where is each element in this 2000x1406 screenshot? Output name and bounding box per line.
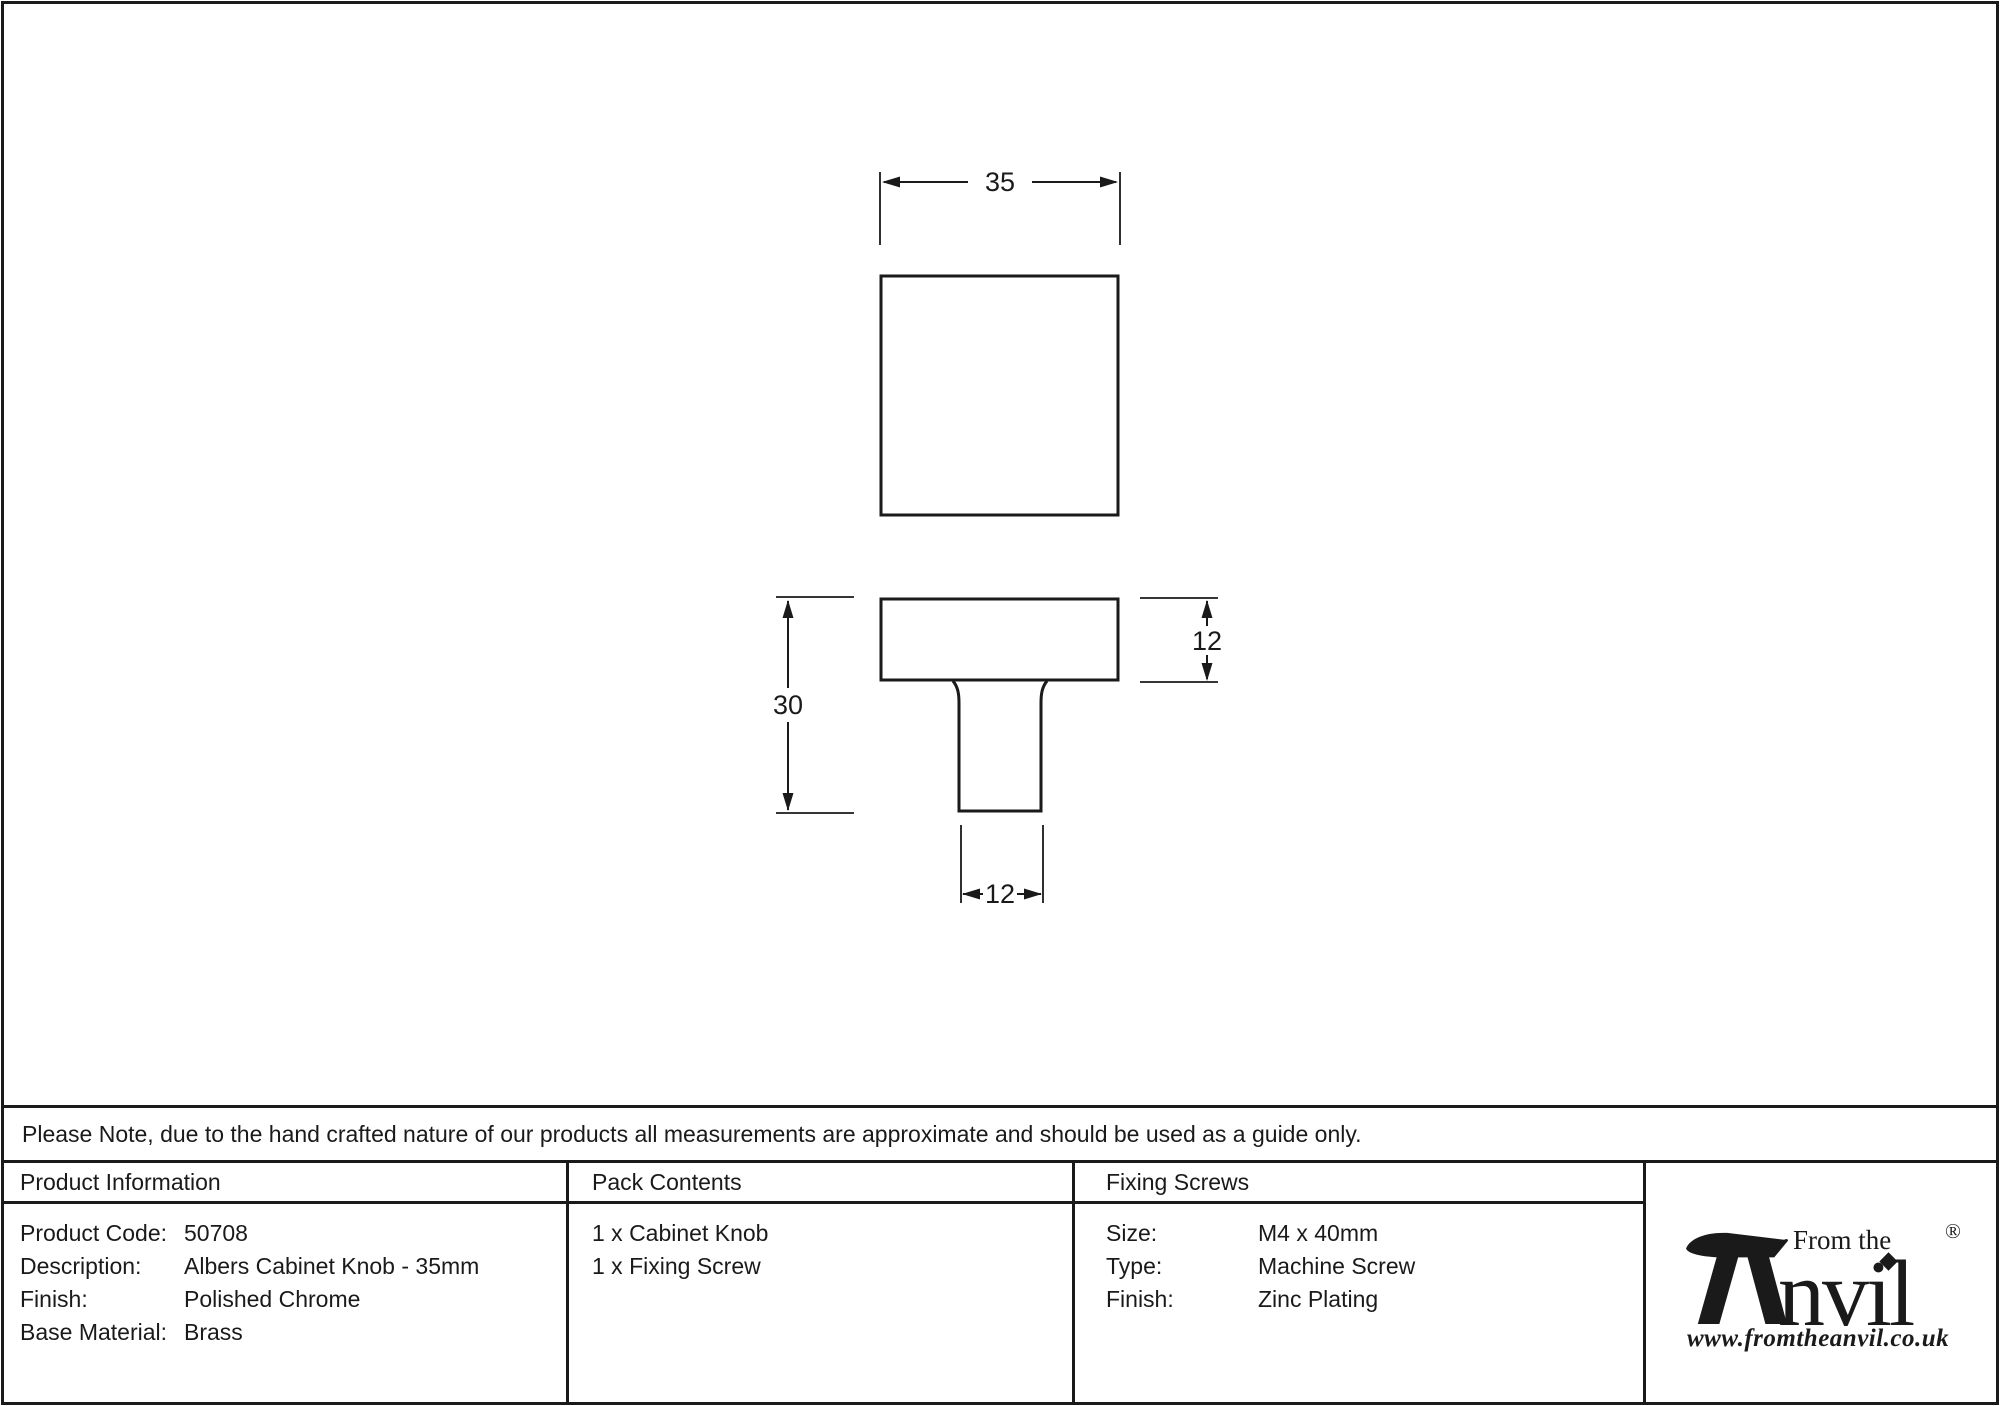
measurement-note-bar: Please Note, due to the hand crafted nat… bbox=[4, 1105, 1996, 1163]
table-row: Type: Machine Screw bbox=[1106, 1250, 1643, 1283]
pack-contents-header: Pack Contents bbox=[569, 1163, 1072, 1204]
dim-label-stem-width: 12 bbox=[985, 879, 1015, 909]
dimension-total-height-30: 30 bbox=[773, 597, 854, 813]
screw-finish-label: Finish: bbox=[1106, 1283, 1258, 1316]
table-row: Finish: Zinc Plating bbox=[1106, 1283, 1643, 1316]
screw-finish-value: Zinc Plating bbox=[1258, 1283, 1643, 1316]
side-view bbox=[881, 599, 1118, 811]
arrow-down-icon bbox=[1202, 663, 1213, 681]
table-row: Base Material: Brass bbox=[20, 1316, 566, 1349]
arrow-right-icon bbox=[1024, 889, 1042, 900]
table-row: Product Code: 50708 bbox=[20, 1217, 566, 1250]
base-material-label: Base Material: bbox=[20, 1316, 184, 1349]
knob-face-square bbox=[881, 276, 1118, 515]
screw-type-value: Machine Screw bbox=[1258, 1250, 1643, 1283]
screw-type-label: Type: bbox=[1106, 1250, 1258, 1283]
arrow-up-icon bbox=[783, 600, 794, 618]
arrow-left-icon bbox=[962, 889, 980, 900]
from-the-anvil-logo: From the nvil ® www.fromtheanvil.co.uk bbox=[1681, 1225, 1961, 1355]
table-row: Size: M4 x 40mm bbox=[1106, 1217, 1643, 1250]
fixing-screws-title: Fixing Screws bbox=[1106, 1169, 1249, 1196]
spec-table: Product Information Product Code: 50708 … bbox=[4, 1163, 1996, 1402]
dimension-stem-width-12: 12 bbox=[961, 825, 1043, 909]
table-row: Finish: Polished Chrome bbox=[20, 1283, 566, 1316]
description-value: Albers Cabinet Knob - 35mm bbox=[184, 1250, 566, 1283]
knob-stem-profile bbox=[953, 681, 1047, 811]
table-row: Description: Albers Cabinet Knob - 35mm bbox=[20, 1250, 566, 1283]
product-code-value: 50708 bbox=[184, 1217, 566, 1250]
measurement-note-text: Please Note, due to the hand crafted nat… bbox=[22, 1121, 1362, 1148]
pack-contents-body: 1 x Cabinet Knob 1 x Fixing Screw bbox=[569, 1204, 1072, 1283]
arrow-down-icon bbox=[783, 793, 794, 811]
finish-value: Polished Chrome bbox=[184, 1283, 566, 1316]
knob-head-profile bbox=[881, 599, 1118, 680]
technical-drawing: 35 30 12 bbox=[0, 0, 2000, 1105]
fixing-screws-body: Size: M4 x 40mm Type: Machine Screw Fini… bbox=[1075, 1204, 1643, 1316]
product-spec-sheet: 35 30 12 bbox=[0, 0, 2000, 1406]
fixing-screws-column: Fixing Screws Size: M4 x 40mm Type: Mach… bbox=[1075, 1163, 1646, 1402]
dim-label-width: 35 bbox=[985, 167, 1015, 197]
logo-website-url: www.fromtheanvil.co.uk bbox=[1687, 1325, 1949, 1353]
finish-label: Finish: bbox=[20, 1283, 184, 1316]
dimension-head-height-12: 12 bbox=[1140, 598, 1222, 682]
dim-label-total-height: 30 bbox=[773, 690, 803, 720]
pack-contents-title: Pack Contents bbox=[592, 1169, 742, 1196]
plan-view bbox=[881, 276, 1118, 515]
product-code-label: Product Code: bbox=[20, 1217, 184, 1250]
anvil-icon bbox=[1681, 1229, 1793, 1327]
list-item: 1 x Fixing Screw bbox=[592, 1250, 1072, 1283]
arrow-up-icon bbox=[1202, 600, 1213, 618]
arrow-right-icon bbox=[1100, 177, 1118, 188]
list-item: 1 x Cabinet Knob bbox=[592, 1217, 1072, 1250]
pack-contents-column: Pack Contents 1 x Cabinet Knob 1 x Fixin… bbox=[569, 1163, 1075, 1402]
screw-size-value: M4 x 40mm bbox=[1258, 1217, 1643, 1250]
product-information-header: Product Information bbox=[4, 1163, 566, 1204]
screw-size-label: Size: bbox=[1106, 1217, 1258, 1250]
product-information-title: Product Information bbox=[20, 1169, 221, 1196]
description-label: Description: bbox=[20, 1250, 184, 1283]
registered-trademark-icon: ® bbox=[1945, 1219, 1961, 1244]
dimension-width-35: 35 bbox=[880, 167, 1120, 245]
dim-label-head-height: 12 bbox=[1192, 626, 1222, 656]
arrow-left-icon bbox=[882, 177, 900, 188]
product-information-body: Product Code: 50708 Description: Albers … bbox=[4, 1204, 566, 1349]
base-material-value: Brass bbox=[184, 1316, 566, 1349]
product-information-column: Product Information Product Code: 50708 … bbox=[4, 1163, 569, 1402]
brand-logo-cell: From the nvil ® www.fromtheanvil.co.uk bbox=[1646, 1163, 1996, 1402]
fixing-screws-header: Fixing Screws bbox=[1075, 1163, 1643, 1204]
